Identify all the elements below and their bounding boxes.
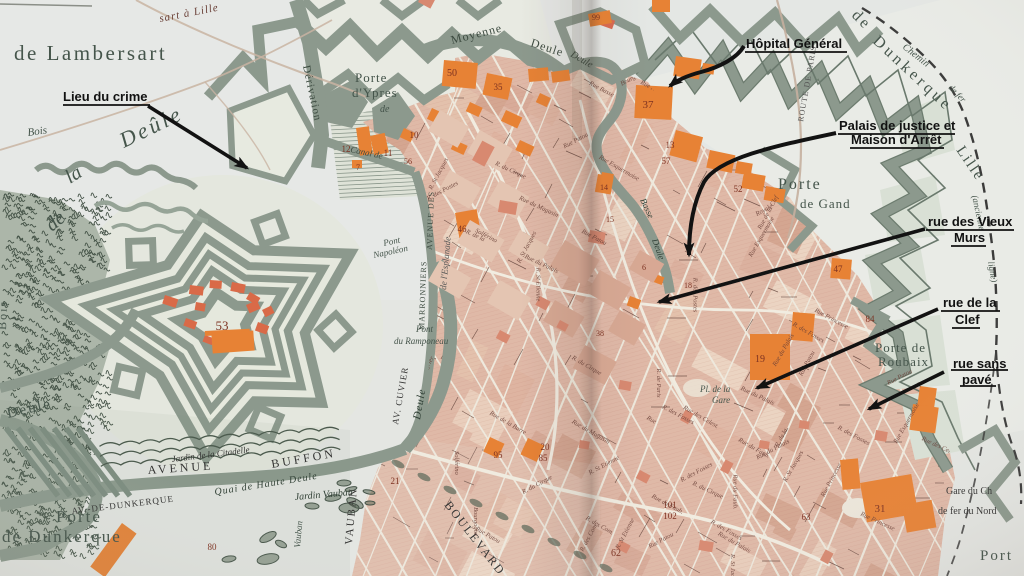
- svg-text:Murs: Murs: [954, 230, 985, 245]
- svg-text:Maison d'Arrêt: Maison d'Arrêt: [851, 132, 942, 147]
- svg-text:Lieu du crime: Lieu du crime: [63, 89, 148, 104]
- svg-text:Palais de justice et: Palais de justice et: [839, 118, 956, 133]
- svg-text:rue sans: rue sans: [953, 356, 1006, 371]
- svg-text:Clef: Clef: [955, 312, 980, 327]
- svg-text:pavé: pavé: [962, 372, 992, 387]
- svg-text:Hôpital Général: Hôpital Général: [746, 36, 842, 51]
- svg-text:rue des Vieux: rue des Vieux: [928, 214, 1013, 229]
- svg-text:rue de la: rue de la: [943, 295, 997, 310]
